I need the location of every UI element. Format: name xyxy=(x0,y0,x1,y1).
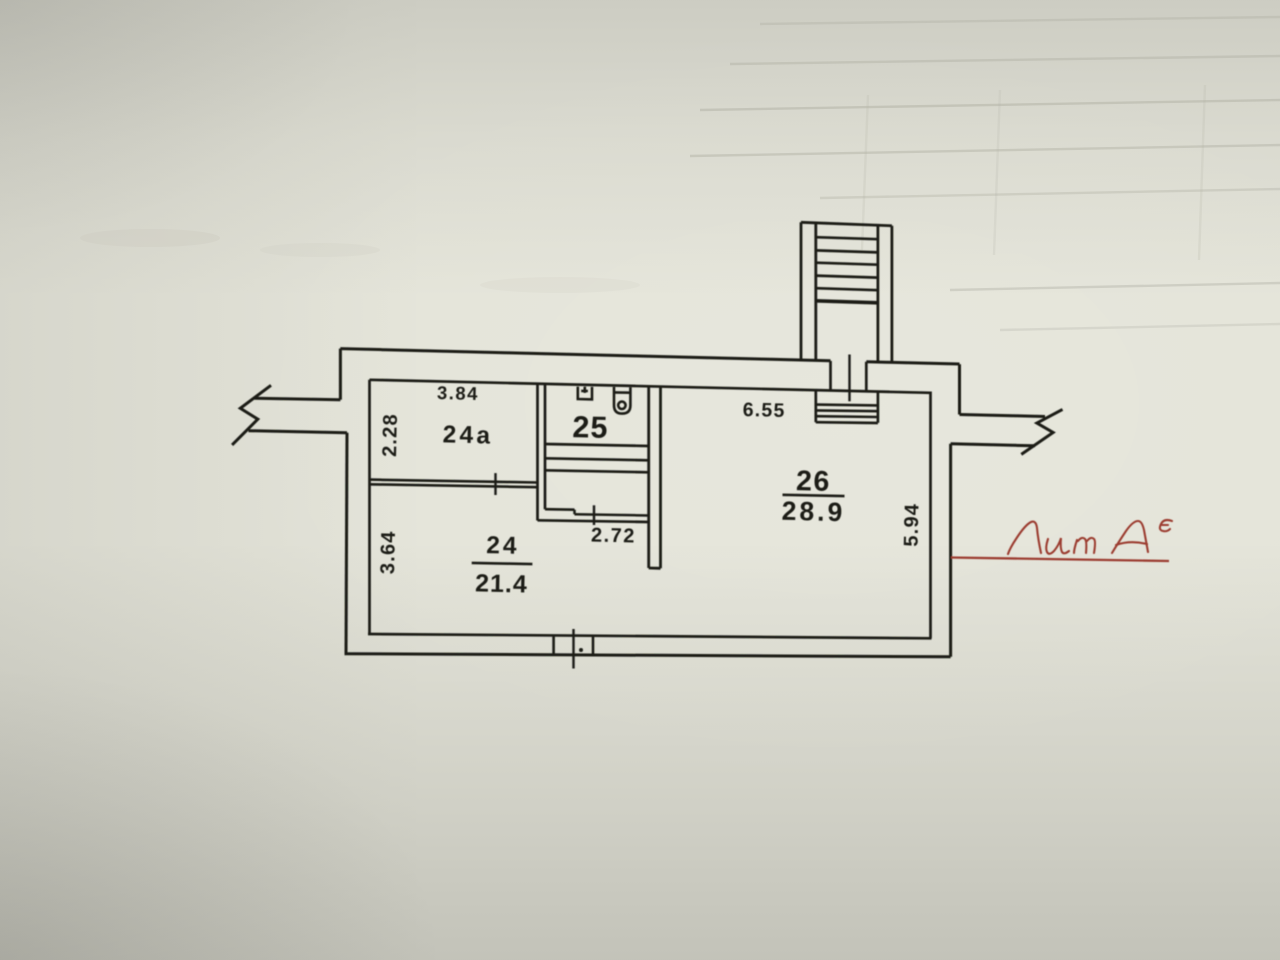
svg-text:6.55: 6.55 xyxy=(743,399,786,422)
svg-text:5.94: 5.94 xyxy=(901,503,924,547)
svg-text:24: 24 xyxy=(486,532,520,560)
svg-text:3.84: 3.84 xyxy=(437,382,479,404)
svg-text:2.72: 2.72 xyxy=(591,524,636,547)
svg-text:26: 26 xyxy=(796,465,831,498)
svg-text:25: 25 xyxy=(572,410,609,445)
svg-text:3.64: 3.64 xyxy=(377,530,400,574)
svg-text:24а: 24а xyxy=(442,421,493,449)
svg-text:21.4: 21.4 xyxy=(475,569,528,598)
svg-text:28.9: 28.9 xyxy=(781,496,845,527)
svg-text:2.28: 2.28 xyxy=(379,413,402,457)
